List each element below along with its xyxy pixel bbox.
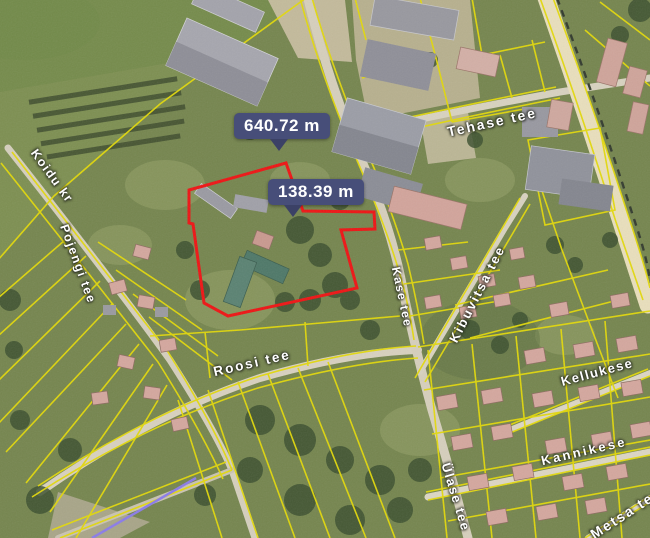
satellite-map-canvas[interactable]: Koidu kr Pojengi tee Tehase tee Kase tee… xyxy=(0,0,650,538)
measurement-badge-138: 138.39 m xyxy=(268,179,364,205)
map-graphics xyxy=(0,0,650,538)
measurement-badge-640: 640.72 m xyxy=(234,113,330,139)
photo-grain-overlay xyxy=(0,0,650,538)
